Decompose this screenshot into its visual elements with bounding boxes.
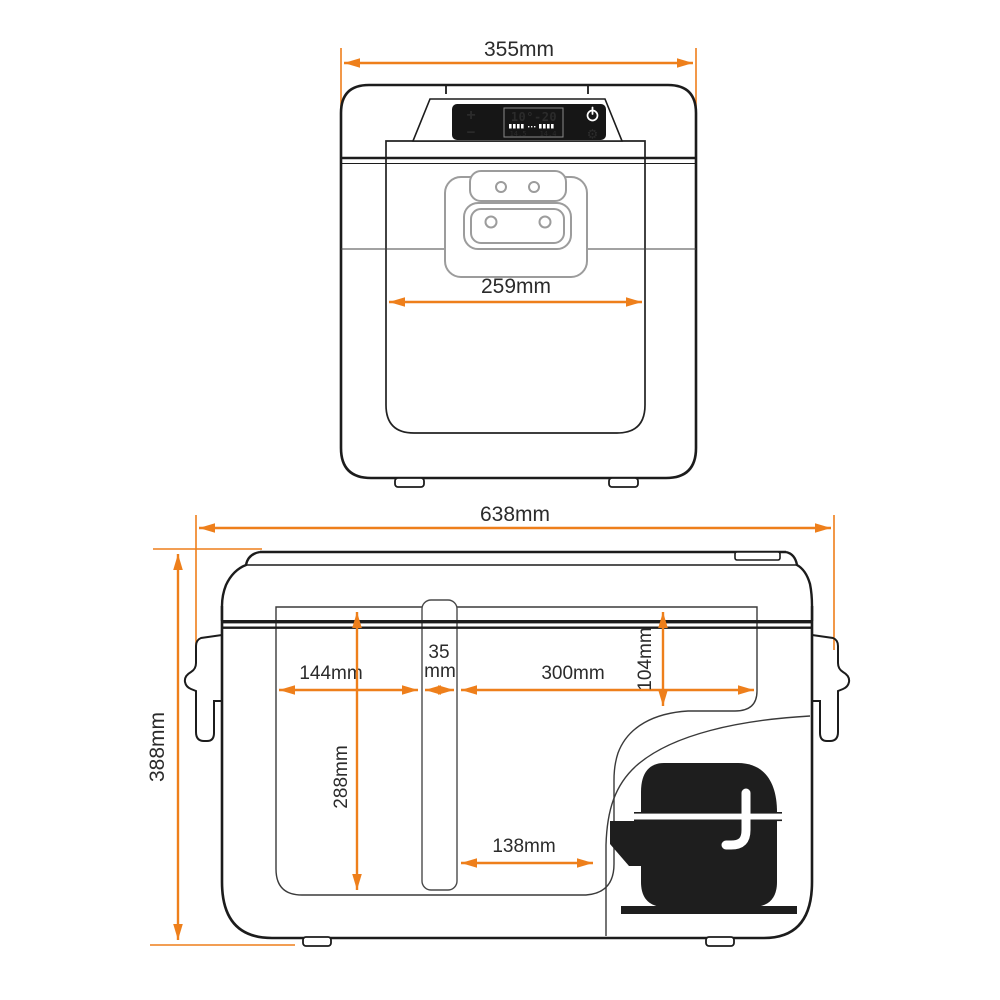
compressor-body <box>641 763 777 907</box>
front-foot-right <box>609 478 638 487</box>
front-view: 355mm + − 10°-20 <box>341 38 696 487</box>
side-view: 638mm 388mm <box>146 503 849 946</box>
lcd-temp-readout: 10°-20 <box>511 110 557 124</box>
dim-355-label: 355mm <box>484 38 554 61</box>
dimension-diagram: 355mm + − 10°-20 <box>0 0 1000 1000</box>
dim-138-label: 138mm <box>492 836 555 857</box>
side-foot-left <box>303 937 331 946</box>
plus-button[interactable]: + <box>466 107 475 124</box>
dim-259-label: 259mm <box>481 275 551 298</box>
front-handle <box>445 171 587 277</box>
side-seam-band-1 <box>222 620 812 623</box>
side-foot-right <box>706 937 734 946</box>
compressor-band <box>634 814 782 820</box>
dim-144-label: 144mm <box>299 663 362 684</box>
dim-35-label-line2: mm <box>424 661 456 682</box>
side-handle-left <box>185 635 222 741</box>
dim-388-label: 388mm <box>146 712 169 782</box>
dim-288-label: 288mm <box>331 745 352 808</box>
lcd-volt-left: 14.5 <box>510 130 527 138</box>
fridge-dimension-drawing: 355mm + − 10°-20 <box>0 0 1000 1000</box>
side-handle-right <box>812 635 849 741</box>
dim-104-label: 104mm <box>635 627 656 690</box>
dim-300-label: 300mm <box>541 663 604 684</box>
side-seam-band-2 <box>222 627 812 629</box>
minus-button[interactable]: − <box>467 124 476 141</box>
gear-icon[interactable]: ⚙ <box>587 127 599 142</box>
front-foot-left <box>395 478 424 487</box>
lid-latch <box>735 552 780 560</box>
dim-638-label: 638mm <box>480 503 550 526</box>
handle-top-plate <box>470 171 566 201</box>
lcd-volt-right: 14.4 <box>540 130 557 138</box>
dim-35-label-line1: 35 <box>428 642 449 663</box>
compressor-base-bar <box>621 906 797 914</box>
